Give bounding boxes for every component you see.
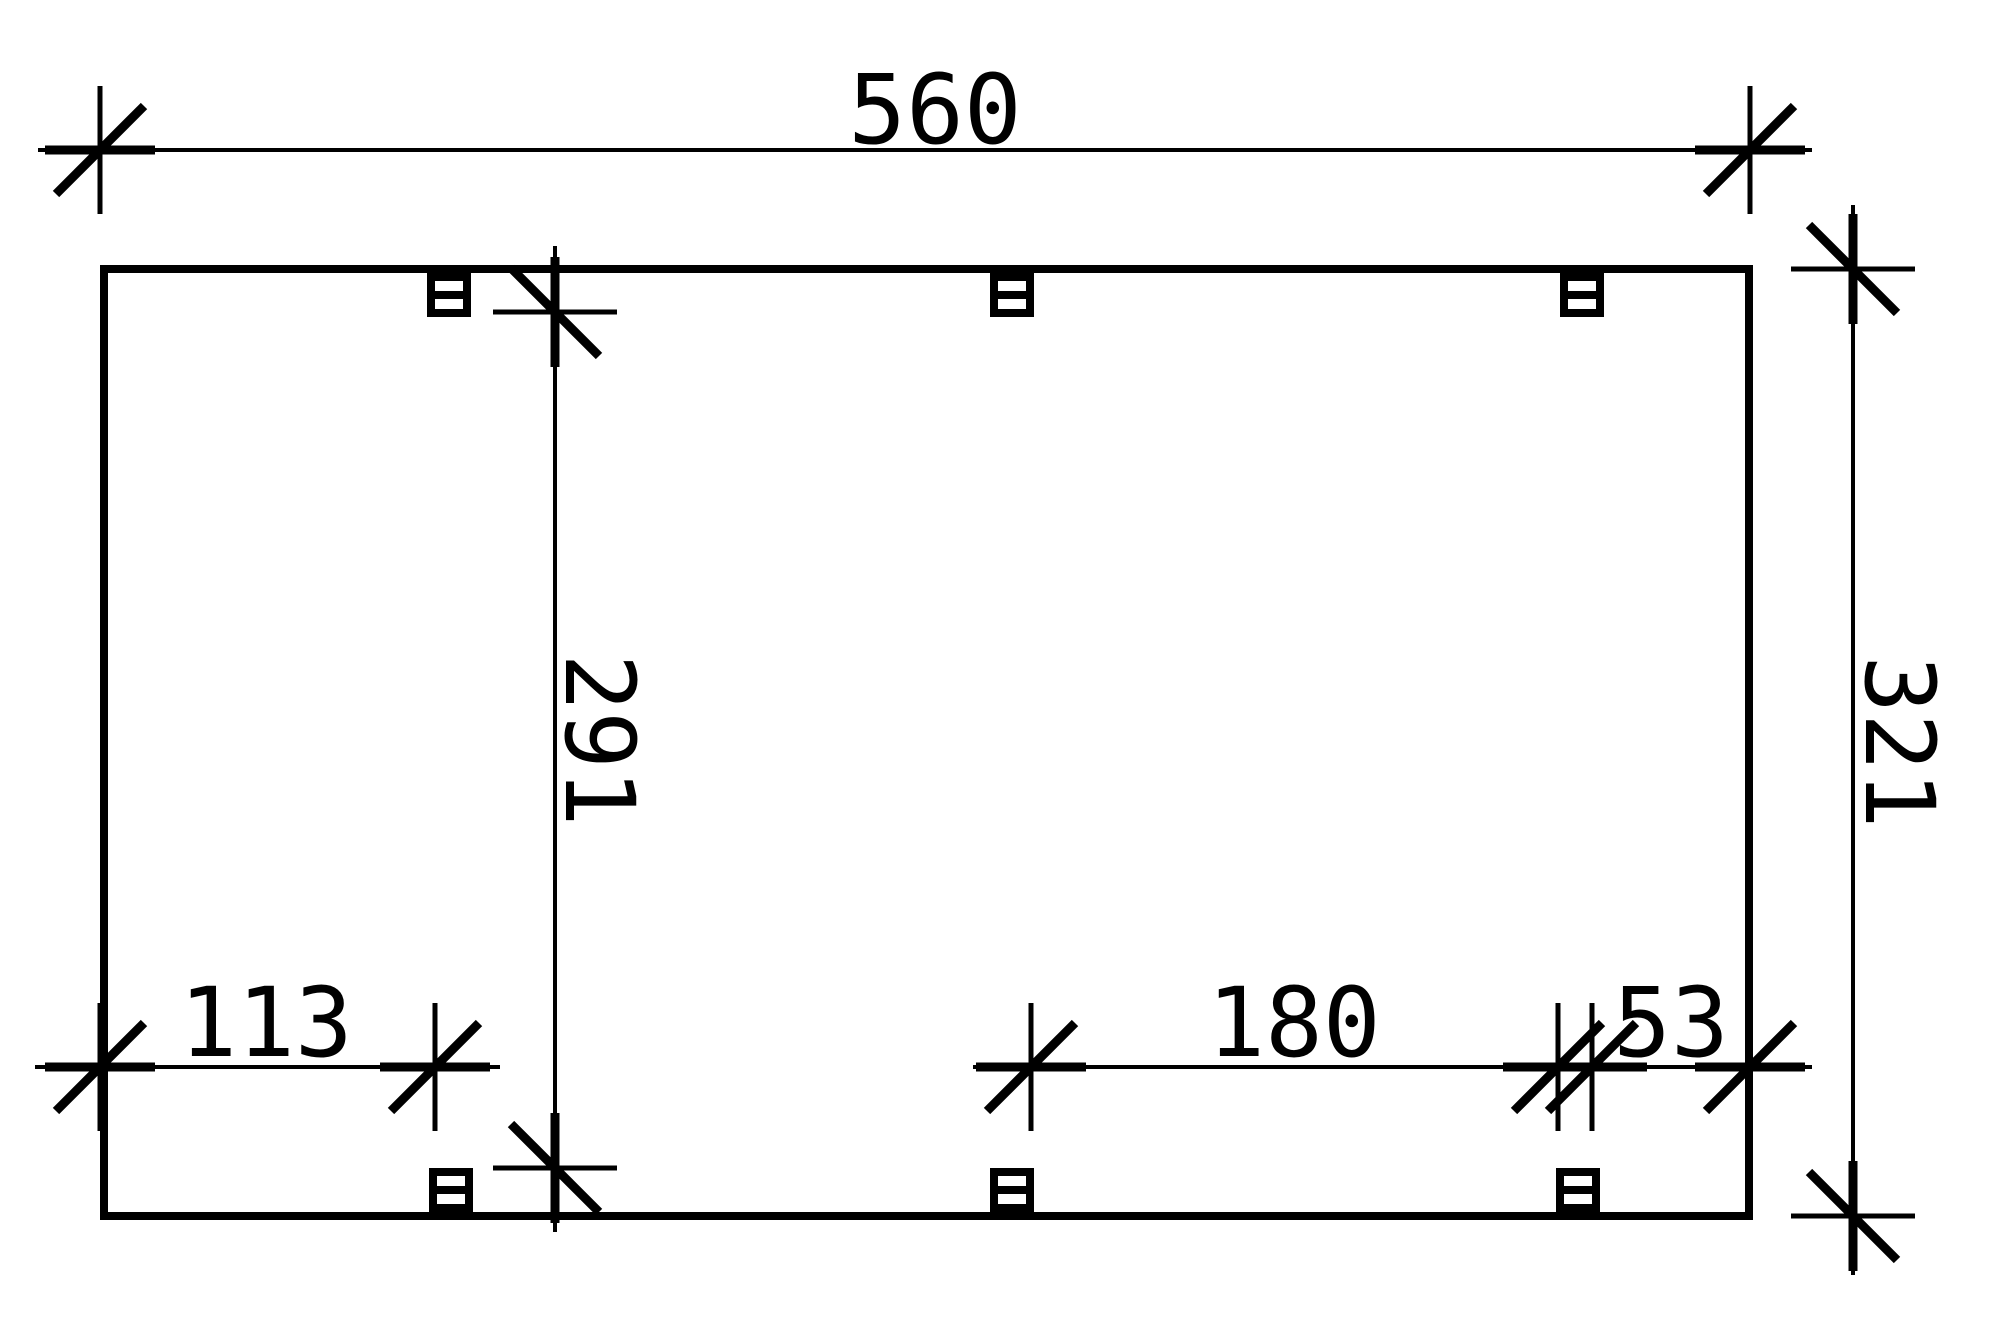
post-symbol-top-left	[431, 277, 467, 313]
dimension-top-width: 560	[38, 54, 1812, 214]
dimension-label-inner-height: 291	[543, 653, 655, 826]
post-symbol-top-middle	[994, 277, 1030, 313]
dimension-bottom-right-group: 180 53	[973, 967, 1812, 1131]
dimension-tick	[976, 1003, 1086, 1131]
post-symbol-bottom-middle	[994, 1172, 1030, 1208]
dimension-tick	[1695, 86, 1805, 214]
dimension-tick	[45, 86, 155, 214]
dimension-label-overall-height: 321	[1843, 655, 1955, 828]
dimension-label-bottom-right: 53	[1613, 967, 1729, 1079]
plan-drawing-canvas: 560 321 291 113 180 53	[0, 0, 2000, 1333]
dimension-label-bottom-middle: 180	[1207, 967, 1380, 1079]
dimension-inner-height: 291	[493, 246, 655, 1232]
dimension-label-bottom-left: 113	[179, 967, 352, 1079]
drawing-page: 560 321 291 113 180 53	[0, 0, 2000, 1333]
post-symbol-bottom-left	[433, 1172, 469, 1208]
dimension-label-top-width: 560	[848, 54, 1021, 166]
dimension-tick	[380, 1003, 490, 1131]
dimension-tick	[1791, 1161, 1915, 1271]
post-symbol-bottom-right	[1560, 1172, 1596, 1208]
dimension-tick	[493, 1113, 617, 1223]
dimension-overall-height: 321	[1791, 205, 1955, 1275]
dimension-tick	[1791, 214, 1915, 324]
dimension-tick	[45, 1003, 155, 1131]
post-symbol-top-right	[1564, 277, 1600, 313]
dimension-tick	[493, 257, 617, 367]
